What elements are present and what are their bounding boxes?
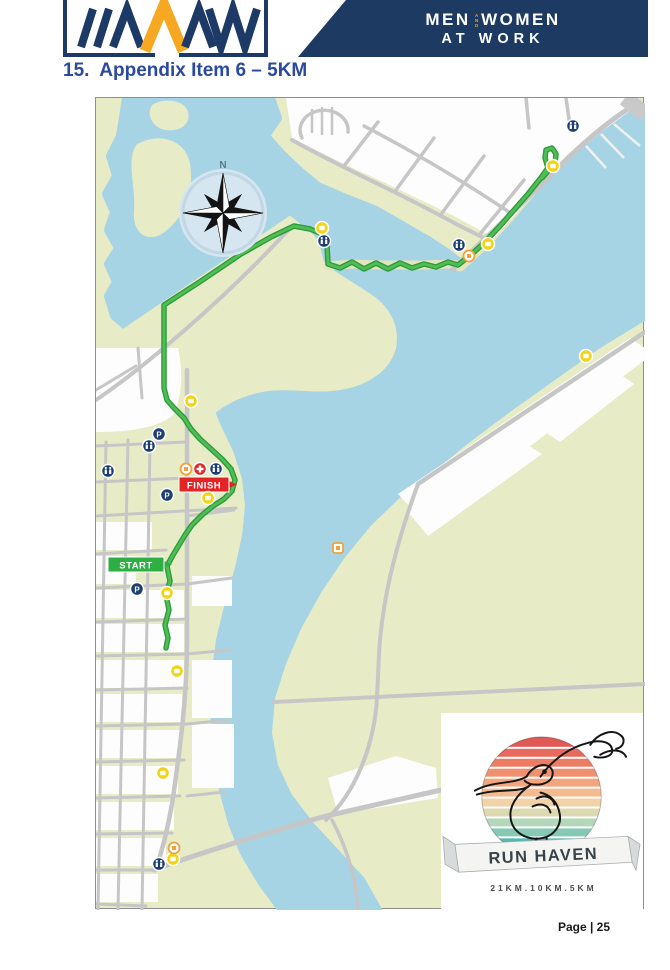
run-haven-emblem-icon: RUN HAVEN 21KM.10KM.5KM	[441, 713, 643, 909]
brand-line1: MEN AND WOMEN	[425, 10, 560, 30]
brand-banner: MEN AND WOMEN AT WORK	[298, 0, 648, 57]
svg-text:P: P	[134, 586, 140, 595]
compass-north-label: N	[219, 160, 226, 171]
parking-marker: P	[131, 583, 144, 596]
ribbon-banner: RUN HAVEN	[443, 836, 640, 872]
first-aid-marker	[194, 463, 207, 476]
svg-text:FINISH: FINISH	[187, 481, 221, 492]
finish-label: FINISH	[179, 477, 237, 492]
start-label: START	[108, 557, 172, 572]
brand-women: WOMEN	[481, 10, 561, 30]
parking-marker: P	[153, 428, 166, 441]
brand-line2: AT WORK	[441, 31, 544, 47]
run-haven-logo: RUN HAVEN 21KM.10KM.5KM	[441, 713, 643, 909]
course-map: N FINISH START P	[95, 97, 644, 909]
svg-text:P: P	[156, 431, 162, 440]
svg-text:P: P	[164, 492, 170, 501]
maw-logo-notch	[155, 53, 179, 57]
page-number: Page | 25	[558, 920, 610, 934]
brand-and: AND	[474, 13, 479, 28]
svg-text:START: START	[119, 561, 152, 572]
maw-logo	[63, 0, 268, 57]
maw-monogram-icon	[67, 0, 264, 53]
run-haven-distances: 21KM.10KM.5KM	[490, 883, 596, 893]
parking-marker: P	[161, 489, 174, 502]
brand-men: MEN	[425, 10, 470, 30]
page-title: 15. Appendix Item 6 – 5KM	[63, 60, 307, 82]
document-page: MEN AND WOMEN AT WORK 15. Appendix Item …	[0, 0, 670, 970]
